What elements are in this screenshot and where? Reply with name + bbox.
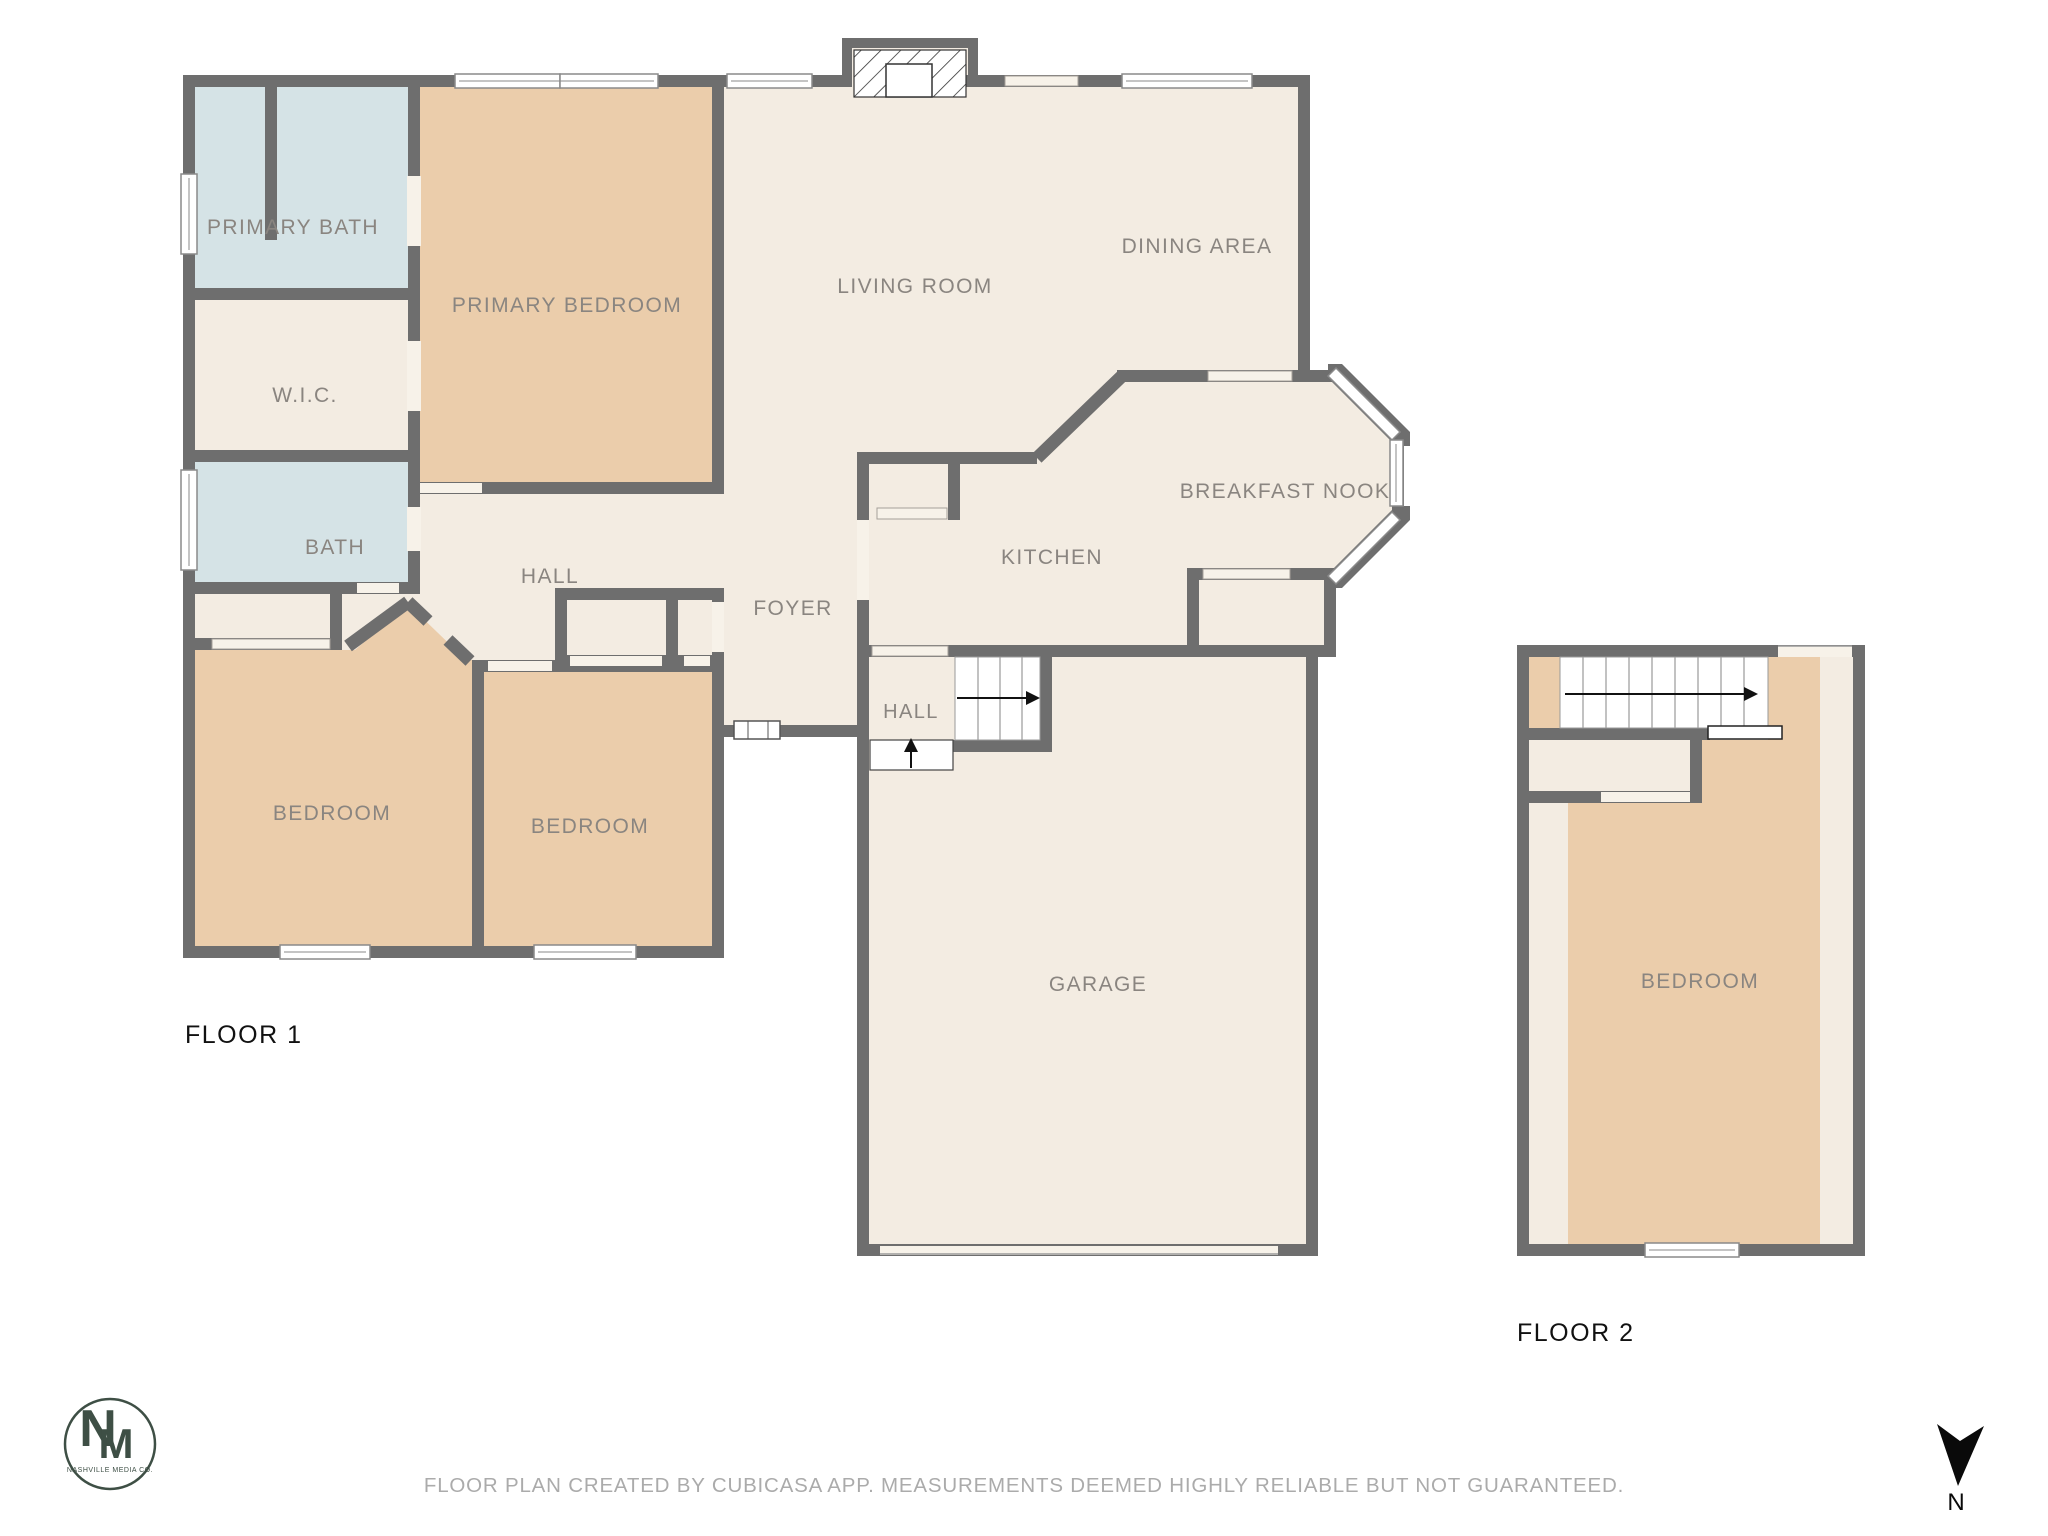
floor2-floor-strip <box>1529 657 1560 728</box>
closet-opening <box>712 602 724 652</box>
door-opening <box>1601 792 1690 802</box>
room-label-bath: BATH <box>305 536 365 559</box>
north-arrow-icon: N <box>1937 1424 1984 1516</box>
cased-opening <box>857 520 869 600</box>
logo-letter-m: M <box>99 1420 134 1467</box>
room-bath-floor <box>195 462 408 582</box>
floor2-title: FLOOR 2 <box>1517 1319 1634 1347</box>
front-door <box>734 721 780 739</box>
closet-opening <box>212 639 330 649</box>
room-label-bedroom-right: BEDROOM <box>531 815 649 838</box>
garage-entry-step <box>870 738 953 770</box>
staircase-floor2 <box>1560 657 1782 739</box>
room-primary-bath-floor <box>195 87 408 290</box>
window-opening <box>1208 371 1292 381</box>
room-label-primary-bath: PRIMARY BATH <box>207 216 379 239</box>
front-porch-cutout <box>724 737 857 958</box>
room-primary-bedroom-floor <box>420 87 718 487</box>
sliding-opening <box>1005 76 1078 86</box>
room-bedroom-left-floor <box>195 604 472 946</box>
footer-caption: FLOOR PLAN CREATED BY CUBICASA APP. MEAS… <box>424 1474 1624 1497</box>
room-label-hall-garage: HALL <box>883 701 939 723</box>
room-label-garage: GARAGE <box>1049 973 1147 996</box>
stair-handrail <box>1708 726 1782 739</box>
door-opening <box>1203 569 1290 579</box>
room-label-living-room: LIVING ROOM <box>837 275 992 298</box>
logo-company-name: NASHVILLE MEDIA CO. <box>67 1467 153 1474</box>
door-opening <box>357 583 399 593</box>
floor1-plan: PRIMARY BATH PRIMARY BEDROOM W.I.C. BATH… <box>181 38 1410 1256</box>
room-label-hall-bedrooms: HALL <box>521 565 579 588</box>
room-label-kitchen: KITCHEN <box>1001 546 1103 569</box>
cased-opening <box>872 646 948 656</box>
door-opening <box>407 341 421 411</box>
floor1-title: FLOOR 1 <box>185 1021 302 1049</box>
staircase-floor1 <box>955 657 1040 740</box>
room-label-bedroom-floor2: BEDROOM <box>1641 970 1759 993</box>
room-label-wic: W.I.C. <box>272 384 338 407</box>
floor-plan-canvas: PRIMARY BATH PRIMARY BEDROOM W.I.C. BATH… <box>0 0 2048 1536</box>
door-opening <box>407 176 421 246</box>
closet-opening <box>570 656 662 666</box>
wall-opening <box>1778 646 1852 657</box>
door-opening <box>488 661 552 671</box>
floor2-plan: BEDROOM FLOOR 2 <box>1517 645 1865 1347</box>
room-label-bedroom-left: BEDROOM <box>273 802 391 825</box>
pantry-opening <box>877 508 947 519</box>
room-label-foyer: FOYER <box>753 597 832 620</box>
door-opening <box>420 483 482 493</box>
room-label-breakfast-nook: BREAKFAST NOOK <box>1180 480 1391 503</box>
room-label-dining-area: DINING AREA <box>1122 235 1273 258</box>
door-opening <box>407 507 421 551</box>
floor-plan-page: PRIMARY BATH PRIMARY BEDROOM W.I.C. BATH… <box>0 0 2048 1536</box>
room-bedroom-right-floor <box>484 666 718 946</box>
north-arrow-label: N <box>1947 1489 1964 1516</box>
fireplace <box>854 50 966 97</box>
room-label-primary-bedroom: PRIMARY BEDROOM <box>452 294 682 317</box>
company-logo: N M NASHVILLE MEDIA CO. <box>65 1399 155 1489</box>
closet-opening <box>684 656 710 666</box>
